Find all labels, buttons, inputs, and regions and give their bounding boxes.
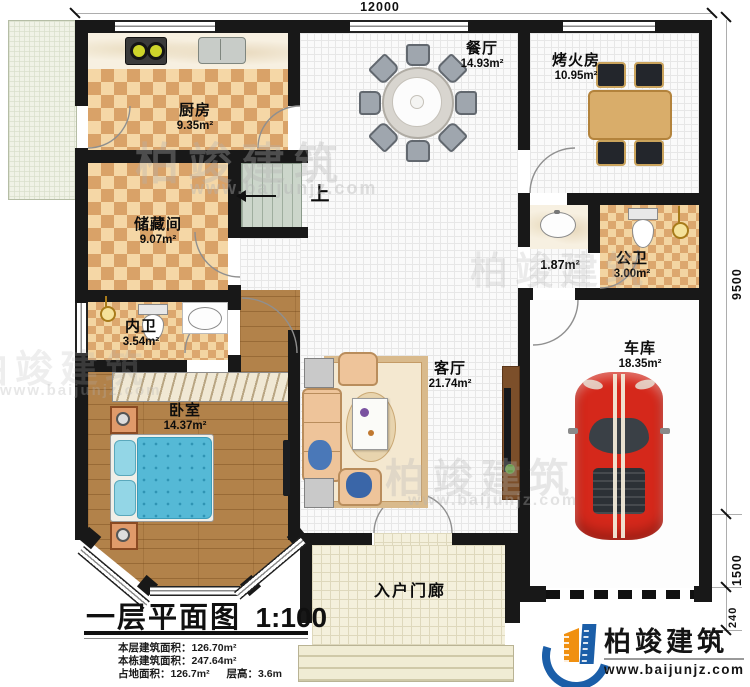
wall bbox=[75, 353, 88, 540]
alcove-faucet bbox=[554, 210, 560, 214]
info-line: 占地面积：126.7m² 层高：3.6m bbox=[118, 668, 348, 681]
wall bbox=[575, 288, 712, 300]
alcove-sink bbox=[540, 212, 576, 238]
wall bbox=[518, 193, 530, 205]
car-stripe bbox=[621, 374, 625, 538]
room-label-fire-room: 烤火房 10.95m² bbox=[530, 52, 622, 84]
wall bbox=[288, 33, 300, 106]
tv bbox=[504, 388, 511, 472]
dining-chair bbox=[359, 91, 381, 115]
person-on-sofa bbox=[308, 440, 332, 470]
stove-burner bbox=[130, 42, 148, 60]
stairs-up-label: 上 bbox=[306, 184, 334, 207]
room-label-storage: 储藏间 9.07m² bbox=[108, 216, 208, 248]
plan-title: 一层平面图 bbox=[86, 602, 241, 634]
wall bbox=[567, 193, 712, 205]
fire-room-chair bbox=[634, 140, 664, 166]
dining-chair bbox=[406, 140, 430, 162]
armchair bbox=[338, 352, 378, 386]
coffee-table bbox=[352, 398, 388, 450]
room-label-porch: 入户门廊 bbox=[350, 582, 470, 601]
stove-burner bbox=[147, 42, 165, 60]
room-label-dining: 餐厅 14.93m² bbox=[435, 40, 529, 72]
car-stripe bbox=[613, 374, 617, 538]
plan-title-row: 一层平面图 1:100 bbox=[86, 594, 326, 636]
info-line: 本层建筑面积：126.70m² bbox=[118, 642, 348, 655]
garage-door bbox=[546, 590, 694, 599]
room-label-kitchen: 厨房 9.35m² bbox=[145, 102, 245, 134]
dining-table-center bbox=[410, 95, 424, 109]
plan-scale: 1:100 bbox=[255, 602, 327, 633]
bed-blanket bbox=[137, 437, 212, 519]
fire-room-chair bbox=[596, 140, 626, 166]
kitchen-sink bbox=[198, 37, 246, 64]
wall bbox=[518, 288, 533, 300]
table-decor bbox=[360, 408, 369, 417]
dimension-top: 12000 bbox=[345, 0, 415, 14]
title-underline bbox=[84, 631, 308, 635]
fire-room-table bbox=[588, 90, 672, 140]
bed-pillow bbox=[114, 480, 136, 516]
car bbox=[575, 372, 663, 540]
person-on-armchair bbox=[346, 472, 372, 498]
garage-corner bbox=[528, 586, 546, 602]
brand-logo: 柏竣建筑 www.baijunjz.com bbox=[540, 616, 745, 682]
room-label-public-bath: 公卫 3.00m² bbox=[600, 250, 664, 282]
plant bbox=[505, 464, 515, 474]
dimension-line-right bbox=[726, 20, 727, 632]
wall bbox=[75, 20, 88, 106]
table-decor bbox=[368, 430, 374, 436]
info-line: 本栋建筑面积：247.64m² bbox=[118, 655, 348, 668]
logo-building-blue-icon bbox=[580, 624, 597, 664]
car-body bbox=[575, 372, 663, 540]
title-info: 本层建筑面积：126.70m² 本栋建筑面积：247.64m² 占地面积：126… bbox=[118, 642, 348, 681]
wardrobe bbox=[112, 372, 290, 402]
wall bbox=[288, 330, 300, 540]
porch-threshold bbox=[374, 533, 452, 545]
nightstand-lamp bbox=[116, 528, 130, 542]
window bbox=[350, 20, 468, 33]
side-table bbox=[304, 358, 334, 388]
window bbox=[75, 303, 88, 353]
wall bbox=[699, 20, 712, 602]
wall bbox=[75, 150, 308, 163]
hall-floor bbox=[240, 238, 300, 290]
floor-plan: 12000 9500 1500 240 bbox=[0, 0, 750, 687]
wall bbox=[228, 227, 308, 238]
room-label-living: 客厅 21.74m² bbox=[400, 360, 500, 392]
side-table bbox=[304, 478, 334, 508]
car-windshield bbox=[589, 418, 649, 454]
car-mirror bbox=[568, 428, 578, 434]
stairs-arrow-head bbox=[236, 190, 246, 202]
stairs-arrow-line bbox=[244, 195, 276, 197]
wall bbox=[75, 148, 88, 303]
kitchen-counter bbox=[88, 33, 288, 69]
dining-chair bbox=[455, 91, 477, 115]
wall bbox=[75, 290, 241, 302]
room-label-wash-alcove: 1.87m² bbox=[530, 258, 590, 273]
room-label-bedroom: 卧室 14.37m² bbox=[135, 402, 235, 434]
room-label-garage: 车库 18.35m² bbox=[596, 340, 684, 372]
wall bbox=[588, 205, 600, 253]
window bbox=[115, 20, 215, 33]
car-mirror bbox=[660, 428, 670, 434]
brand-url: www.baijunjz.com bbox=[604, 662, 745, 677]
window bbox=[563, 20, 655, 33]
shower-head bbox=[672, 222, 689, 239]
dimension-right-lower: 1500 bbox=[730, 530, 744, 586]
dining-chair bbox=[406, 44, 430, 66]
kitchen-sink-divider bbox=[220, 39, 221, 60]
brand-name: 柏竣建筑 bbox=[604, 620, 728, 659]
nightstand-lamp bbox=[116, 412, 130, 426]
wall bbox=[228, 360, 241, 372]
brand-rule bbox=[604, 658, 744, 660]
dimension-right-upper: 9500 bbox=[730, 240, 744, 300]
title-underline-thin bbox=[84, 638, 308, 639]
wall bbox=[75, 360, 187, 372]
terrace-floor bbox=[8, 20, 77, 200]
car-engine-cover bbox=[593, 468, 645, 514]
shower-cord bbox=[105, 296, 107, 308]
bath-sink bbox=[188, 307, 222, 330]
fire-room-chair bbox=[634, 62, 664, 88]
bed-pillow bbox=[114, 440, 136, 476]
room-label-private-bath: 内卫 3.54m² bbox=[105, 318, 177, 350]
garage-corner bbox=[694, 586, 712, 602]
bedroom-tv bbox=[283, 440, 290, 496]
shower-cord bbox=[678, 206, 680, 223]
